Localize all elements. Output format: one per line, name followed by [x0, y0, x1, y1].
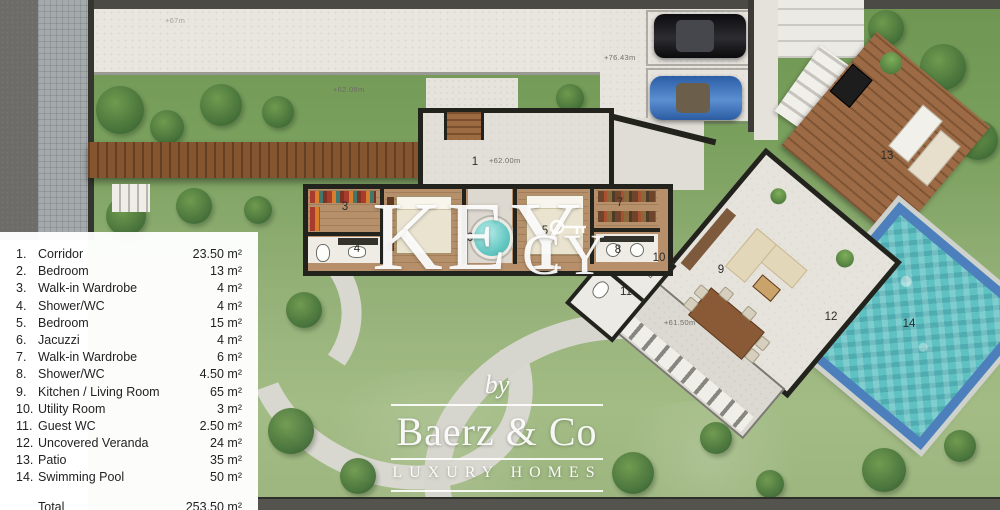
legend-row: 10.Utility Room3 m²: [16, 401, 242, 418]
tree: [96, 86, 144, 134]
bedroom-2: [385, 189, 461, 263]
tree: [612, 452, 654, 494]
legend-row: 5.Bedroom15 m²: [16, 315, 242, 332]
tree: [268, 408, 314, 454]
legend-lab: Shower/WC: [38, 366, 200, 383]
side-steps: [112, 184, 150, 212]
entrance-steps: [444, 112, 484, 140]
tree: [200, 84, 242, 126]
tree: [944, 430, 976, 462]
legend-rows: 1.Corridor23.50 m²2.Bedroom13 m²3.Walk-i…: [16, 246, 242, 487]
car-cabin: [676, 20, 714, 52]
jacuzzi-tub: [471, 217, 513, 259]
tree: [286, 292, 322, 328]
legend-area: 6 m²: [217, 349, 242, 366]
wall: [513, 188, 517, 264]
tree: [340, 458, 376, 494]
toilet: [589, 278, 611, 301]
legend-row: 13.Patio35 m²: [16, 452, 242, 469]
jacuzzi-room-6: [468, 189, 512, 263]
legend-area: 4.50 m²: [200, 366, 242, 383]
plant: [832, 246, 857, 271]
room-label-1: 1: [472, 156, 478, 168]
clothes-rack: [310, 207, 320, 231]
elevation-label: +76.43m: [604, 53, 636, 62]
nightstand: [387, 243, 394, 251]
elevation-label: +62.08m: [333, 85, 365, 94]
plant: [875, 48, 906, 79]
legend-area: 13 m²: [210, 263, 242, 280]
plant: [767, 185, 790, 208]
sidewalk-strip: [38, 0, 88, 240]
tree: [756, 470, 784, 498]
total-area: 253.50 m²: [186, 500, 242, 510]
room-legend: 1.Corridor23.50 m²2.Bedroom13 m²3.Walk-i…: [0, 232, 258, 510]
side-path: [754, 0, 778, 140]
legend-lab: Shower/WC: [38, 298, 217, 315]
legend-area: 65 m²: [210, 384, 242, 401]
legend-total-row: Total 253.50 m²: [16, 500, 242, 510]
floor-plan-canvas: 1 2 3 4 5 6 7 8 9 10 11 12 13 14 +67m +6…: [0, 0, 1000, 510]
pillow: [397, 197, 451, 210]
total-label: Total: [16, 500, 186, 510]
legend-lab: Walk-in Wardrobe: [38, 349, 217, 366]
pillow: [527, 196, 583, 209]
room-label-12: 12: [825, 311, 838, 323]
legend-row: 14.Swimming Pool50 m²: [16, 469, 242, 486]
legend-num: 9.: [16, 384, 38, 401]
room-label-4: 4: [354, 243, 360, 255]
vanity: [600, 236, 654, 242]
legend-row: 9.Kitchen / Living Room65 m²: [16, 384, 242, 401]
legend-num: 4.: [16, 298, 38, 315]
legend-lab: Bedroom: [38, 263, 210, 280]
room-label-13: 13: [881, 150, 894, 162]
bottom-road-strip: [258, 497, 1000, 510]
legend-lab: Swimming Pool: [38, 469, 210, 486]
wooden-deck-strip: [88, 142, 432, 178]
elevation-label: +62.00m: [489, 156, 521, 165]
legend-row: 6.Jacuzzi4 m²: [16, 332, 242, 349]
legend-area: 3 m²: [217, 401, 242, 418]
room-label-14: 14: [903, 318, 916, 330]
legend-num: 10.: [16, 401, 38, 418]
key-icon: [548, 214, 590, 242]
legend-area: 23.50 m²: [193, 246, 242, 263]
legend-num: 2.: [16, 263, 38, 280]
wall: [462, 188, 466, 264]
wall: [380, 188, 384, 264]
legend-num: 11.: [16, 418, 38, 435]
legend-num: 1.: [16, 246, 38, 263]
legend-lab: Walk-in Wardrobe: [38, 280, 217, 297]
wall: [306, 232, 382, 236]
shower-wc-4: [308, 237, 380, 263]
legend-lab: Uncovered Veranda: [38, 435, 210, 452]
legend-row: 4.Shower/WC4 m²: [16, 298, 242, 315]
legend-num: 6.: [16, 332, 38, 349]
legend-lab: Guest WC: [38, 418, 200, 435]
clothes-rack: [598, 211, 656, 222]
tree: [244, 196, 272, 224]
legend-row: 2.Bedroom13 m²: [16, 263, 242, 280]
legend-num: 5.: [16, 315, 38, 332]
legend-row: 3.Walk-in Wardrobe4 m²: [16, 280, 242, 297]
coffee-table: [752, 274, 781, 302]
room-label-11: 11: [620, 286, 632, 298]
elevation-label: +61.50m: [664, 318, 696, 327]
legend-row: 1.Corridor23.50 m²: [16, 246, 242, 263]
legend-row: 12.Uncovered Veranda24 m²: [16, 435, 242, 452]
room-label-7: 7: [617, 197, 623, 209]
legend-num: 14.: [16, 469, 38, 486]
tree: [862, 448, 906, 492]
sink: [630, 243, 644, 257]
legend-num: 13.: [16, 452, 38, 469]
legend-num: 3.: [16, 280, 38, 297]
room-label-8: 8: [615, 244, 621, 256]
blue-car: [650, 76, 742, 120]
wall: [590, 188, 594, 264]
legend-row: 11.Guest WC2.50 m²: [16, 418, 242, 435]
legend-num: 12.: [16, 435, 38, 452]
room-label-9: 9: [718, 264, 724, 276]
legend-area: 24 m²: [210, 435, 242, 452]
top-boundary-wall: [94, 0, 1000, 9]
black-car: [654, 14, 746, 58]
legend-lab: Kitchen / Living Room: [38, 384, 210, 401]
toilet: [316, 244, 330, 262]
shower-wc-8: [596, 234, 658, 262]
legend-lab: Patio: [38, 452, 210, 469]
legend-num: 8.: [16, 366, 38, 383]
bed: [396, 196, 452, 254]
tree: [176, 188, 212, 224]
legend-area: 4 m²: [217, 280, 242, 297]
legend-area: 35 m²: [210, 452, 242, 469]
legend-lab: Bedroom: [38, 315, 210, 332]
legend-area: 15 m²: [210, 315, 242, 332]
nightstand: [387, 197, 394, 205]
room-label-6: 6: [467, 232, 473, 244]
room-label-3: 3: [342, 201, 348, 213]
legend-lab: Corridor: [38, 246, 193, 263]
legend-area: 50 m²: [210, 469, 242, 486]
legend-lab: Utility Room: [38, 401, 217, 418]
legend-row: 7.Walk-in Wardrobe6 m²: [16, 349, 242, 366]
legend-area: 4 m²: [217, 298, 242, 315]
wall: [594, 228, 660, 232]
legend-area: 4 m²: [217, 332, 242, 349]
legend-row: 8.Shower/WC4.50 m²: [16, 366, 242, 383]
elevation-label: +67m: [165, 16, 185, 25]
legend-lab: Jacuzzi: [38, 332, 217, 349]
room-label-2: 2: [401, 228, 407, 240]
legend-num: 7.: [16, 349, 38, 366]
car-cabin: [676, 83, 710, 113]
tree: [150, 110, 184, 144]
road-strip: [0, 0, 38, 240]
walkin-wardrobe-7: [596, 189, 658, 226]
tree: [262, 96, 294, 128]
clothes-rack: [598, 191, 656, 202]
room-label-10: 10: [653, 252, 666, 264]
legend-area: 2.50 m²: [200, 418, 242, 435]
